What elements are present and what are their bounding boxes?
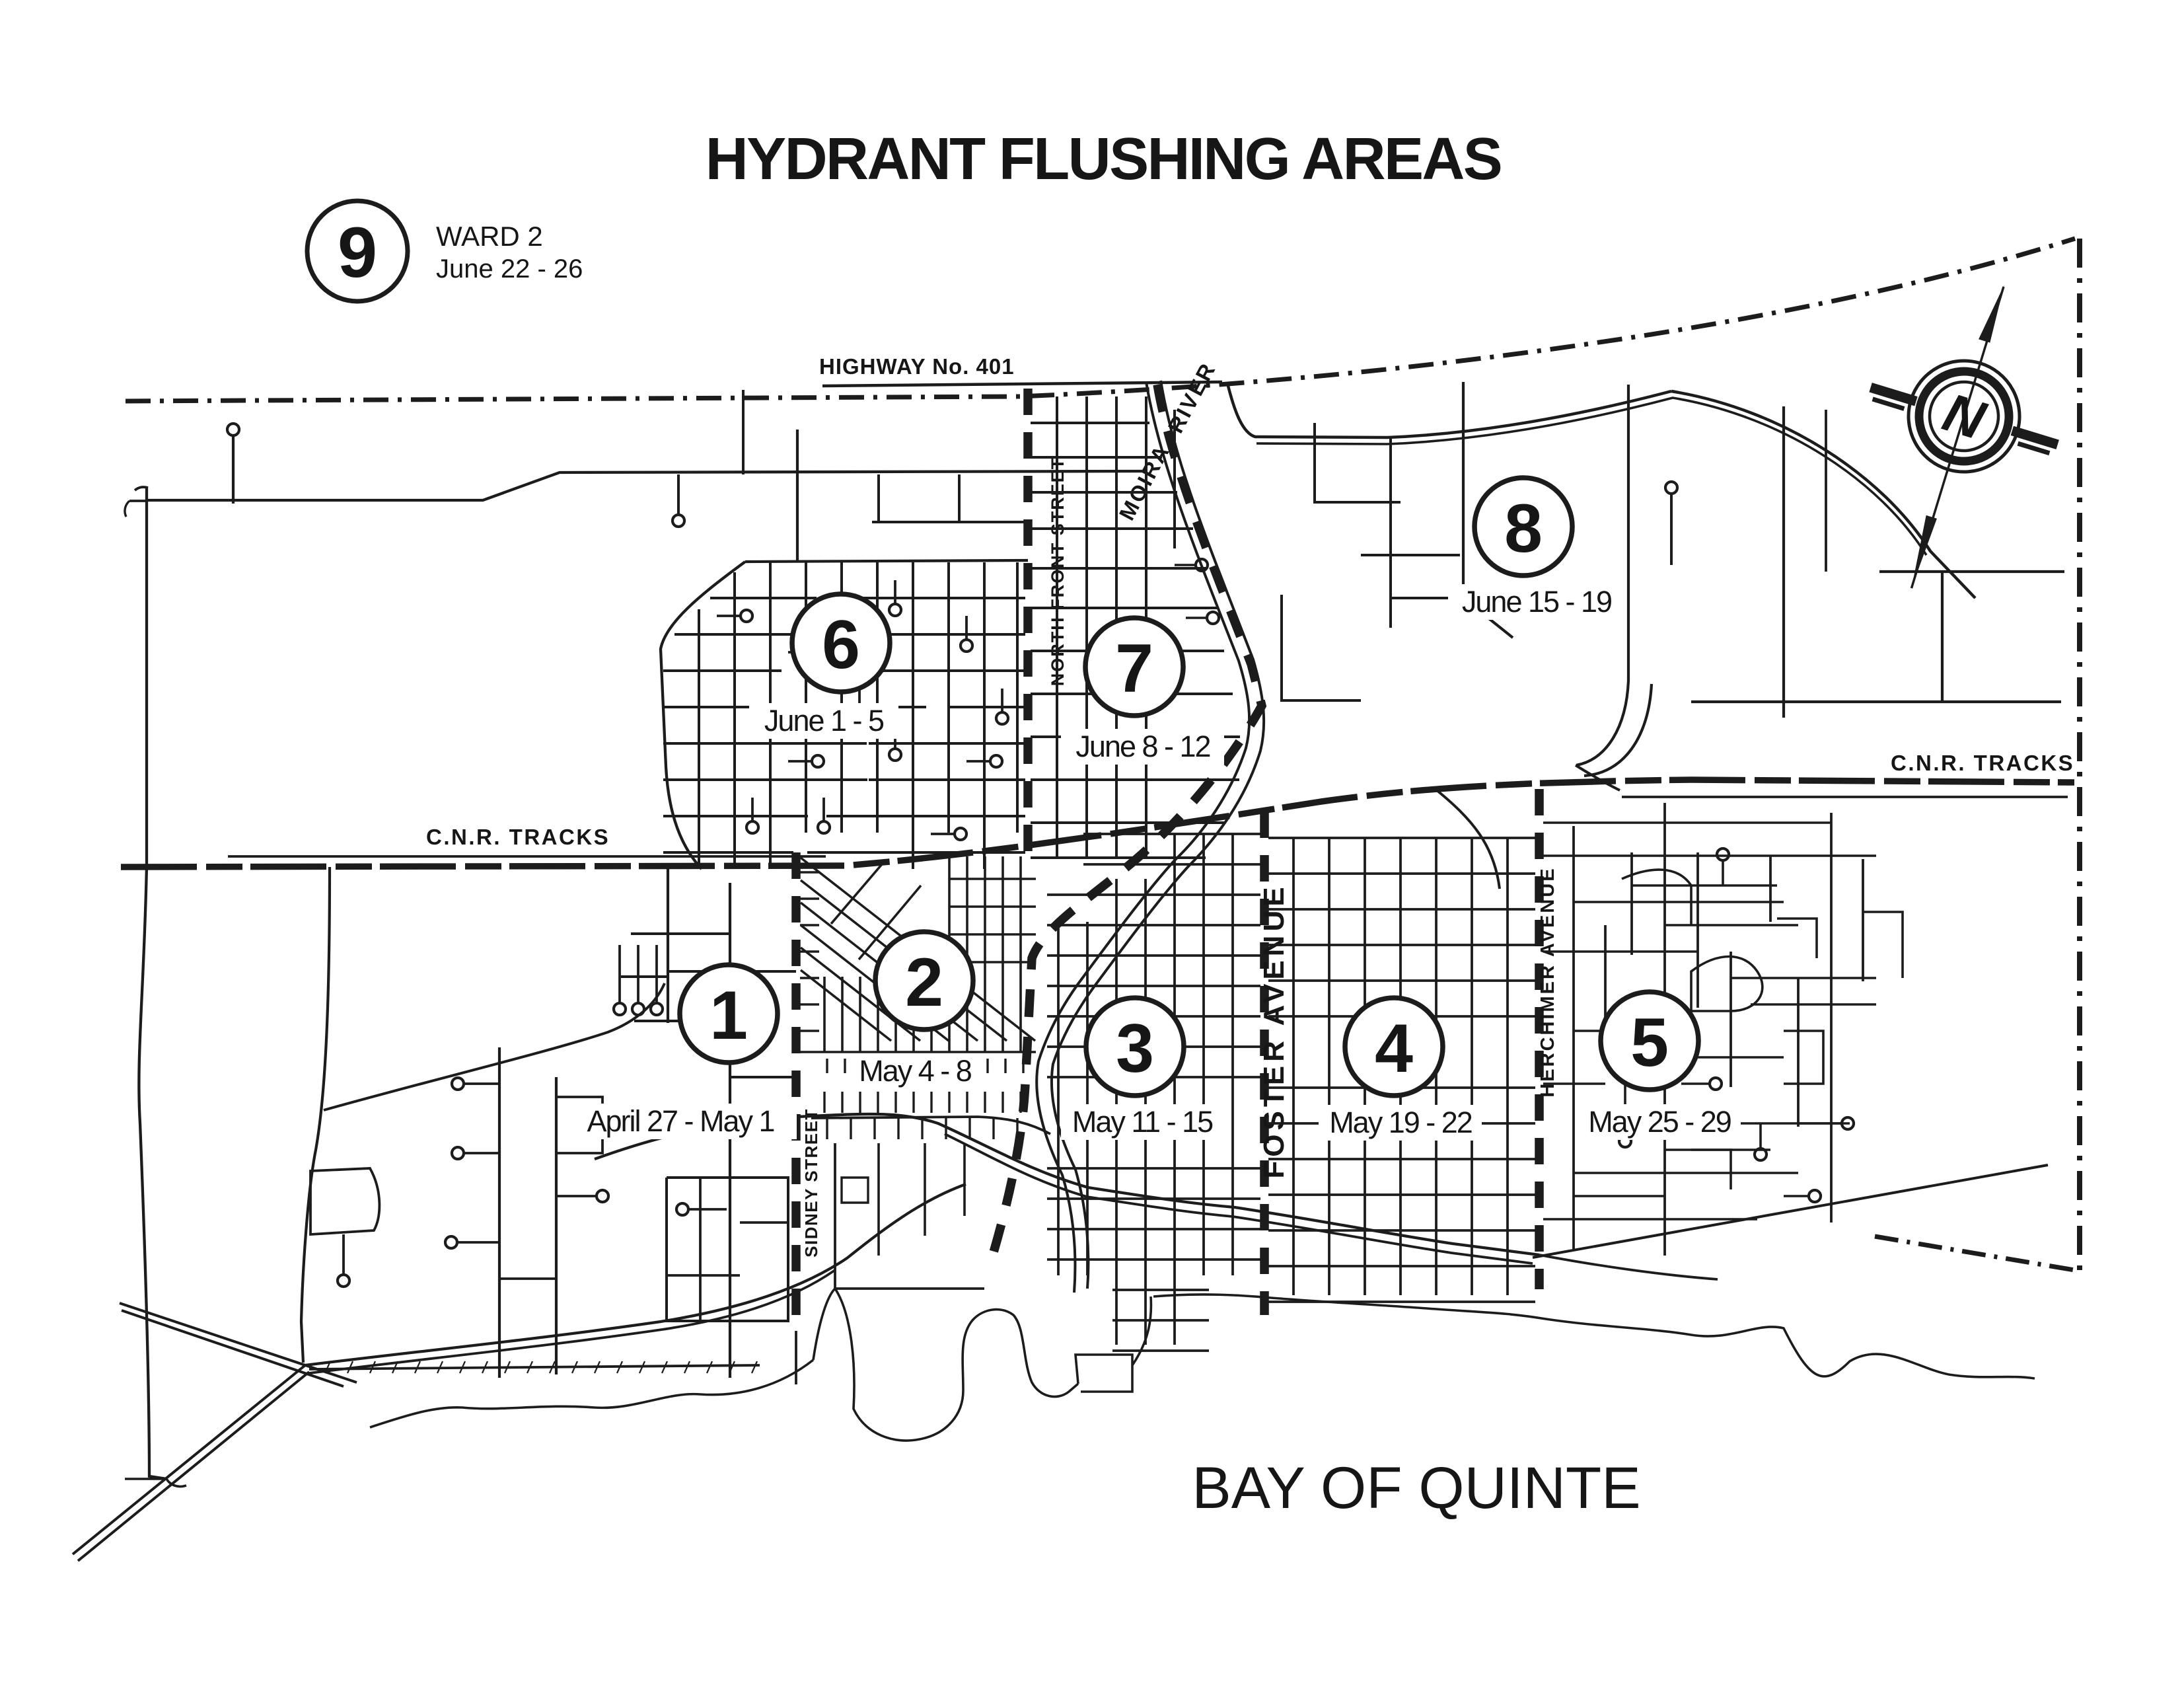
svg-text:FOSTER AVENUE: FOSTER AVENUE xyxy=(1258,883,1290,1178)
svg-text:6: 6 xyxy=(822,607,860,683)
svg-text:2: 2 xyxy=(905,944,943,1021)
svg-text:HYDRANT FLUSHING AREAS: HYDRANT FLUSHING AREAS xyxy=(706,126,1501,192)
svg-text:May 25 - 29: May 25 - 29 xyxy=(1588,1105,1731,1139)
svg-text:May 11 - 15: May 11 - 15 xyxy=(1072,1105,1213,1139)
svg-text:9: 9 xyxy=(338,212,377,292)
svg-text:May 19 - 22: May 19 - 22 xyxy=(1329,1106,1472,1139)
svg-text:WARD 2: WARD 2 xyxy=(436,221,543,252)
svg-text:June 8 - 12: June 8 - 12 xyxy=(1075,730,1210,763)
svg-text:May 4 - 8: May 4 - 8 xyxy=(859,1054,972,1088)
svg-text:HERCHIMER AVENUE: HERCHIMER AVENUE xyxy=(1537,866,1558,1097)
svg-text:SIDNEY STREET: SIDNEY STREET xyxy=(801,1108,821,1258)
svg-text:C.N.R. TRACKS: C.N.R. TRACKS xyxy=(426,825,610,849)
svg-text:April 27 - May 1: April 27 - May 1 xyxy=(587,1104,774,1138)
svg-text:8: 8 xyxy=(1504,490,1543,567)
svg-text:4: 4 xyxy=(1375,1010,1413,1087)
svg-text:BAY OF QUINTE: BAY OF QUINTE xyxy=(1192,1454,1640,1521)
svg-text:5: 5 xyxy=(1630,1004,1669,1081)
svg-text:1: 1 xyxy=(710,977,748,1054)
svg-text:June 22 - 26: June 22 - 26 xyxy=(436,254,583,283)
svg-text:June 15 - 19: June 15 - 19 xyxy=(1462,585,1611,619)
svg-text:C.N.R. TRACKS: C.N.R. TRACKS xyxy=(1891,751,2074,775)
svg-text:HIGHWAY No. 401: HIGHWAY No. 401 xyxy=(819,354,1015,379)
svg-text:3: 3 xyxy=(1116,1010,1154,1087)
svg-text:7: 7 xyxy=(1115,630,1153,707)
svg-text:June 1 - 5: June 1 - 5 xyxy=(764,704,884,737)
